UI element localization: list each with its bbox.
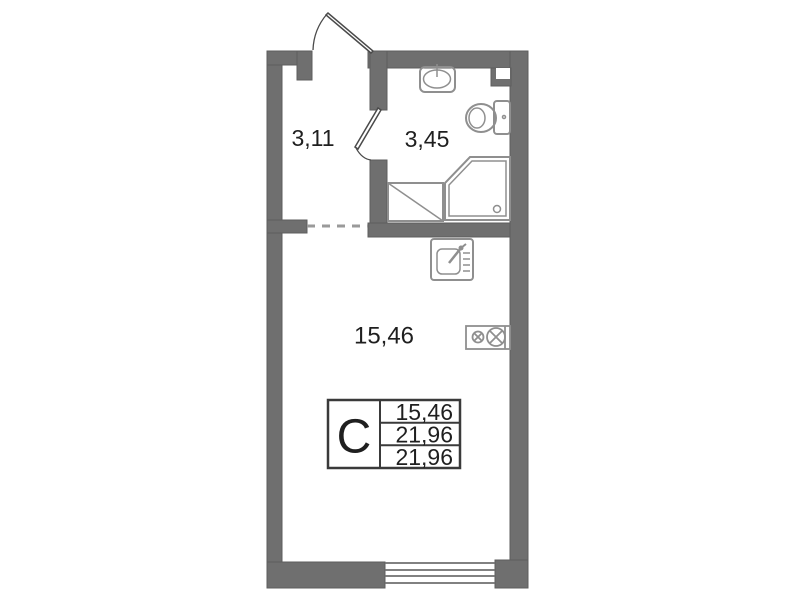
- legend-table: С 15,46 21,96 21,96: [328, 399, 460, 470]
- entry-door-swing-arc: [313, 14, 327, 50]
- washer-zone-icon: [388, 183, 443, 221]
- corner-shower-icon: [445, 157, 510, 220]
- toilet-cistern-button: [503, 116, 506, 119]
- wall-top-right-segment: [368, 51, 528, 68]
- wall-left: [267, 51, 282, 588]
- hallway-area-label: 3,11: [291, 125, 334, 151]
- wall-right: [510, 51, 528, 588]
- wall-entry-left-jamb: [297, 51, 312, 80]
- entry-door-leaf: [326, 13, 373, 53]
- interior-door-leaf: [355, 108, 381, 149]
- wall-bottom-left-segment: [267, 562, 385, 588]
- bathroom-area-label: 3,45: [405, 126, 450, 152]
- window-icon: [385, 563, 495, 583]
- wall-separator-upper: [370, 51, 387, 110]
- wall-bathroom-bottom: [368, 223, 510, 237]
- kitchen-sink-tap: [449, 248, 461, 263]
- washer-zone-diagonal: [388, 183, 443, 221]
- toilet-bowl-inner: [469, 108, 485, 128]
- living-room-area-label: 15,46: [354, 323, 414, 350]
- wall-hallway-bottom-stub: [267, 220, 307, 233]
- entry-door-icon: [313, 13, 373, 53]
- legend-type-letter: С: [337, 411, 372, 464]
- kitchen-sink-drainer: [463, 253, 470, 271]
- shower-drain: [494, 206, 501, 213]
- wall-bottom-right-corner: [495, 560, 528, 588]
- floorplan-svg: 3,11 3,45 15,46 С 15,46 21,96 21,96: [0, 0, 799, 600]
- duct-notch: [496, 68, 510, 79]
- floorplan-canvas: 3,11 3,45 15,46 С 15,46 21,96 21,96: [0, 0, 799, 600]
- stove-icon: [466, 326, 510, 349]
- kitchen-sink-icon: [431, 239, 473, 280]
- legend-value-total-reduced: 21,96: [395, 444, 453, 470]
- toilet-bowl-outer: [466, 104, 496, 132]
- toilet-icon: [466, 101, 510, 134]
- interior-door-icon: [355, 108, 381, 160]
